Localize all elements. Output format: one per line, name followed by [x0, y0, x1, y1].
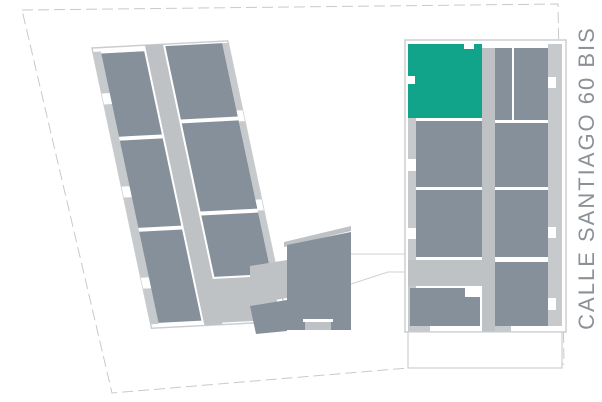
notch [408, 76, 415, 84]
street-label: CALLE SANTIAGO 60 BIS [574, 26, 599, 330]
corridor-east [482, 48, 495, 332]
notch [303, 319, 333, 322]
unit-selected[interactable] [408, 44, 482, 118]
unit[interactable] [495, 262, 548, 326]
edge-strip [408, 326, 430, 332]
notch [548, 298, 556, 310]
notch [464, 44, 474, 49]
unit[interactable] [495, 48, 548, 120]
plaza-central [250, 260, 287, 304]
notch [548, 227, 556, 238]
notch [408, 159, 416, 171]
wall-line [512, 48, 514, 120]
unit[interactable] [416, 190, 482, 257]
building-east [405, 40, 566, 332]
unit[interactable] [495, 123, 548, 187]
site-plan-svg: CALLE SANTIAGO 60 BIS [0, 0, 602, 402]
forecourt-plot [408, 332, 562, 368]
entrance-step [305, 322, 331, 330]
unit[interactable] [416, 121, 482, 187]
unit[interactable] [495, 190, 548, 257]
notch [408, 228, 416, 239]
unit[interactable] [250, 300, 287, 334]
walkway-east [408, 260, 482, 286]
edge-strip [495, 326, 511, 332]
path-line-lower [351, 272, 405, 284]
unit[interactable] [287, 249, 351, 330]
site-plan: CALLE SANTIAGO 60 BIS [0, 0, 602, 402]
notch [548, 77, 556, 88]
